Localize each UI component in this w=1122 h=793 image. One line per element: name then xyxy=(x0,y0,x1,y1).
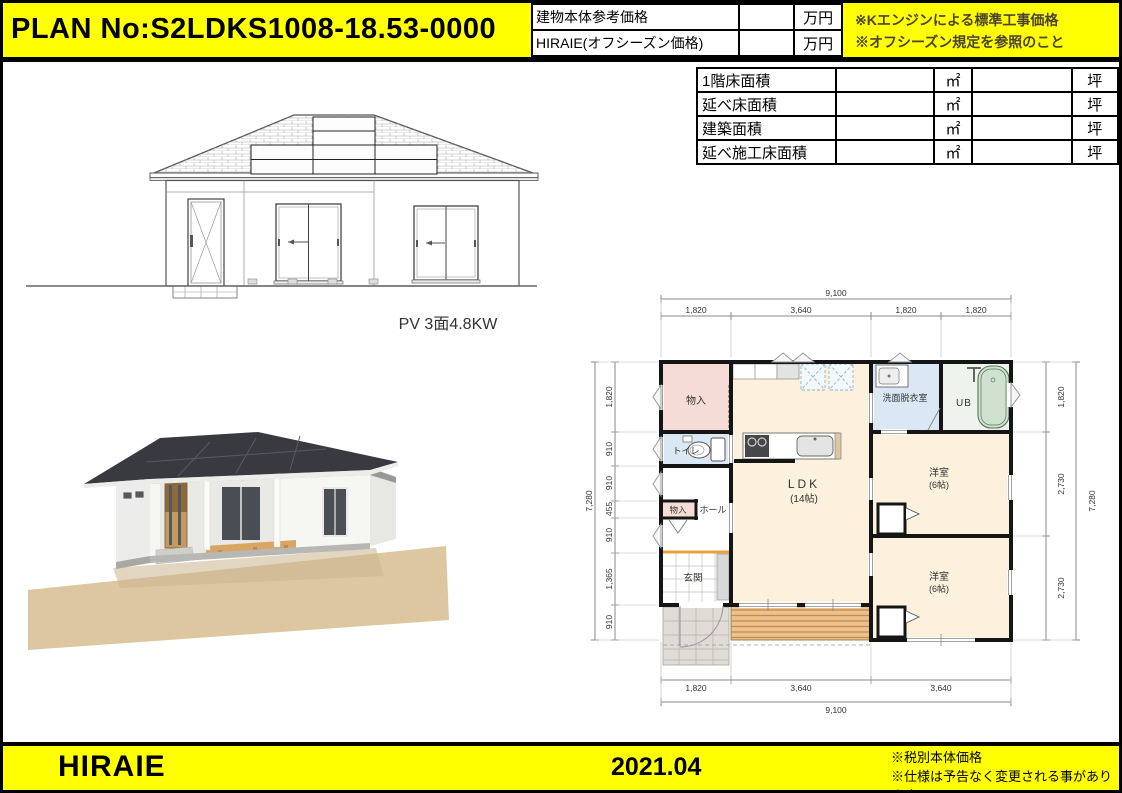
dim: 1,820 xyxy=(965,305,987,315)
price-row-unit: 万円 xyxy=(794,4,842,30)
price-row-label: HIRAIE(オフシーズン価格) xyxy=(532,30,739,56)
dim: 1,820 xyxy=(895,305,917,315)
room-label-storage-top: 物入 xyxy=(686,394,706,407)
room-label-washroom: 洗面脱衣室 xyxy=(882,392,927,403)
room-label-bath: UB xyxy=(956,398,972,409)
wall-left xyxy=(116,477,150,566)
dim: 910 xyxy=(604,615,614,629)
brand-logo: HIRAIE xyxy=(58,750,166,784)
table-row: HIRAIE(オフシーズン価格) 万円 xyxy=(532,30,842,56)
dim: 1,820 xyxy=(685,305,707,315)
room-label-bedroom1-size: (6帖) xyxy=(929,479,949,490)
dim: 3,640 xyxy=(790,683,812,693)
area-row-value-tsubo xyxy=(972,92,1072,116)
dim: 910 xyxy=(604,442,614,456)
area-row-unit-m2: ㎡ xyxy=(934,116,972,140)
area-row-unit-tsubo: 坪 xyxy=(1072,92,1118,116)
area-row-value-m2 xyxy=(836,92,934,116)
dim-top-overall: 9,100 xyxy=(825,288,847,298)
patio-window xyxy=(221,486,261,541)
header-note: ※Kエンジンによる標準工事価格 xyxy=(855,9,1115,31)
footer-notes: ※税別本体価格 ※仕様は予告なく変更される事があります。 xyxy=(891,748,1119,793)
table-row: 建築面積 ㎡ 坪 xyxy=(697,116,1118,140)
area-row-value-m2 xyxy=(836,116,934,140)
room-label-storage-small: 物入 xyxy=(669,505,687,515)
area-row-unit-tsubo: 坪 xyxy=(1072,68,1118,92)
room-label-hall: ホール xyxy=(699,505,726,515)
area-row-unit-m2: ㎡ xyxy=(934,92,972,116)
dim: 910 xyxy=(604,528,614,542)
dim: 2,730 xyxy=(1056,473,1066,495)
plan-number: PLAN No:S2LDKS1008-18.53-0000 xyxy=(11,13,496,46)
area-row-value-tsubo xyxy=(972,140,1072,164)
header-bar: PLAN No:S2LDKS1008-18.53-0000 建物本体参考価格 万… xyxy=(3,3,1119,57)
area-row-label: 延べ床面積 xyxy=(697,92,836,116)
room-label-bedroom2-size: (6帖) xyxy=(929,583,949,594)
stove-icon xyxy=(745,435,769,457)
side-window xyxy=(323,488,347,536)
area-row-value-tsubo xyxy=(972,116,1072,140)
area-row-unit-m2: ㎡ xyxy=(934,68,972,92)
table-row: 延べ床面積 ㎡ 坪 xyxy=(697,92,1118,116)
small-window xyxy=(123,492,132,499)
footer-note: ※仕様は予告なく変更される事があります。 xyxy=(891,767,1119,793)
kitchen-counter xyxy=(743,433,841,459)
table-row: 1階床面積 ㎡ 坪 xyxy=(697,68,1118,92)
elevation-drawing: PV 3面4.8KW xyxy=(21,73,561,335)
room-label-toilet: トイレ xyxy=(672,446,699,456)
area-row-label: 1階床面積 xyxy=(697,68,836,92)
cupboard xyxy=(733,364,799,379)
wood-door xyxy=(165,482,187,548)
footer-note: ※税別本体価格 xyxy=(891,748,1119,767)
dim-bottom-overall: 9,100 xyxy=(825,705,847,715)
dim: 3,640 xyxy=(790,305,812,315)
dim: 455 xyxy=(604,502,614,516)
area-row-unit-tsubo: 坪 xyxy=(1072,116,1118,140)
plan-sheet: PLAN No:S2LDKS1008-18.53-0000 建物本体参考価格 万… xyxy=(0,0,1122,793)
area-row-value-tsubo xyxy=(972,68,1072,92)
room-label-ldk: LDK xyxy=(788,477,820,491)
dim: 1,820 xyxy=(685,683,707,693)
price-row-label: 建物本体参考価格 xyxy=(532,4,739,30)
dim-left-overall: 7,280 xyxy=(584,490,594,512)
dim: 910 xyxy=(604,476,614,490)
price-row-value xyxy=(739,4,794,30)
room-label-bedroom1: 洋室 xyxy=(929,466,949,479)
area-table: 1階床面積 ㎡ 坪 延べ床面積 ㎡ 坪 建築面積 ㎡ 坪 延べ施工床面積 ㎡ 坪 xyxy=(696,67,1119,165)
price-row-value xyxy=(739,30,794,56)
dim: 1,365 xyxy=(604,568,614,590)
header-divider xyxy=(3,57,1119,62)
dim: 1,820 xyxy=(1056,386,1066,408)
price-table: 建物本体参考価格 万円 HIRAIE(オフシーズン価格) 万円 xyxy=(531,3,843,57)
area-row-value-m2 xyxy=(836,68,934,92)
area-row-unit-m2: ㎡ xyxy=(934,140,972,164)
area-row-label: 建築面積 xyxy=(697,116,836,140)
dim: 3,640 xyxy=(930,683,952,693)
sliding-window xyxy=(274,204,343,284)
wood-deck xyxy=(731,605,871,640)
closet-bedroom1 xyxy=(878,504,905,534)
room-label-bedroom2: 洋室 xyxy=(929,570,949,583)
pv-caption: PV 3面4.8KW xyxy=(399,316,499,333)
dim: 1,820 xyxy=(604,386,614,408)
floor-plan: 物入 トイレ 物入 ホール 玄関 LDK (14帖) 洗面脱衣室 UB 洋室 (… xyxy=(583,285,1122,733)
table-row: 延べ施工床面積 ㎡ 坪 xyxy=(697,140,1118,164)
closet-bedroom2 xyxy=(878,607,905,637)
porch-post xyxy=(204,476,210,550)
small-window xyxy=(135,491,144,498)
house-3d-render xyxy=(28,398,458,678)
area-row-unit-tsubo: 坪 xyxy=(1072,140,1118,164)
footer-bar: HIRAIE 2021.04 ※税別本体価格 ※仕様は予告なく変更される事があり… xyxy=(3,742,1119,790)
footer-date: 2021.04 xyxy=(611,753,701,782)
dim: 2,730 xyxy=(1056,577,1066,599)
room-label-ldk-size: (14帖) xyxy=(790,492,818,505)
washbasin-icon xyxy=(876,365,908,387)
approach-tiles xyxy=(663,607,729,665)
header-note: ※オフシーズン規定を参照のこと xyxy=(855,31,1115,53)
sliding-window xyxy=(412,206,480,283)
header-notes: ※Kエンジンによる標準工事価格 ※オフシーズン規定を参照のこと xyxy=(855,9,1115,53)
price-row-unit: 万円 xyxy=(794,30,842,56)
porch-post xyxy=(274,473,280,547)
dim-right-overall: 7,280 xyxy=(1087,490,1097,512)
area-row-value-m2 xyxy=(836,140,934,164)
area-row-label: 延べ施工床面積 xyxy=(697,140,836,164)
room-label-entrance: 玄関 xyxy=(683,572,702,584)
table-row: 建物本体参考価格 万円 xyxy=(532,4,842,30)
